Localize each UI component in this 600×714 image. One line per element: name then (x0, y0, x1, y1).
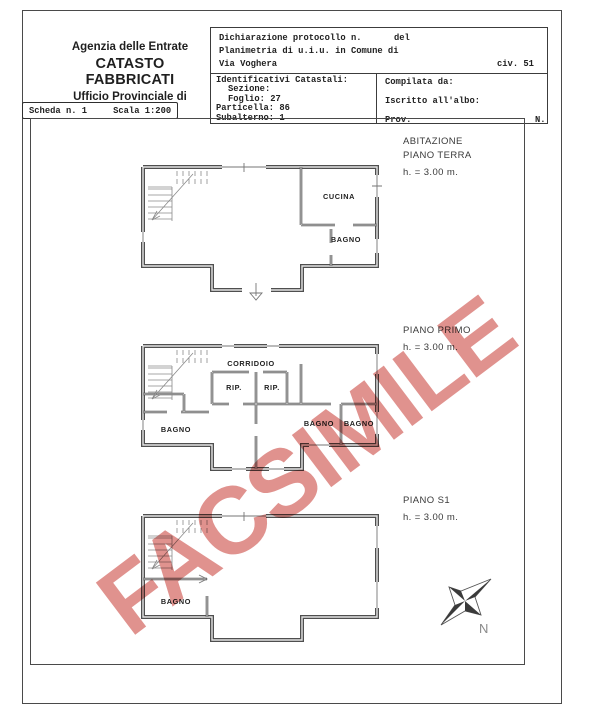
cadastral-identifiers: Identificativi Catastali: Sezione: Fogli… (211, 74, 377, 124)
del-label: del (394, 32, 410, 45)
window-symbols (143, 163, 382, 296)
protocol-section: Dichiarazione protocollo n. del Planimet… (211, 28, 547, 74)
planimetria-label: Planimetria di u.i.u. in Comune di (219, 45, 539, 58)
window-symbols (199, 512, 377, 608)
height-label: h. = 3.00 m. (403, 166, 472, 180)
compiler-box: Compilata da: Iscritto all'albo: Prov. N… (377, 74, 547, 124)
floor-title-piano-s1: PIANO S1 h. = 3.00 m. (403, 494, 458, 525)
staircase-icon (148, 350, 207, 400)
compass-rose-icon: N (431, 567, 503, 639)
room-label-corridoio: CORRIDOIO (227, 359, 275, 368)
floorplan-piano-terra: CUCINA BAGNO (139, 163, 389, 303)
protocol-row-address: Via Voghera civ. 51 (219, 58, 539, 71)
north-label: N (479, 621, 488, 636)
protocol-row-declaration: Dichiarazione protocollo n. del (219, 32, 539, 45)
floorplan-piano-primo: CORRIDOIO RIP. RIP. BAGNO BAGNO BAGNO (139, 342, 389, 482)
staircase-icon (148, 171, 207, 221)
floorplan-piano-s1: BAGNO (139, 512, 389, 662)
declaration-label: Dichiarazione protocollo n. (219, 33, 362, 43)
albo-label: Iscritto all'albo: (385, 96, 539, 106)
agency-header: Agenzia delle Entrate CATASTO FABBRICATI… (51, 41, 209, 103)
cadastral-document-page: Agenzia delle Entrate CATASTO FABBRICATI… (0, 0, 600, 714)
piano-primo-label: PIANO PRIMO (403, 324, 471, 338)
height-label: h. = 3.00 m. (403, 341, 471, 355)
height-label: h. = 3.00 m. (403, 511, 458, 525)
catasto-title: CATASTO FABBRICATI (51, 56, 209, 88)
room-label-bagno: BAGNO (331, 235, 361, 244)
scale-label: Scala 1:200 (113, 106, 171, 116)
drawing-area: CUCINA BAGNO CORRIDOIO RIP. RIP. BAGNO B… (30, 118, 525, 665)
street-label: Via Voghera (219, 59, 277, 69)
floor-title-piano-primo: PIANO PRIMO h. = 3.00 m. (403, 324, 471, 355)
floor-title-piano-terra: ABITAZIONE PIANO TERRA h. = 3.00 m. (403, 135, 472, 180)
civic-number-label: civ. 51 (497, 58, 534, 71)
agency-name: Agenzia delle Entrate (51, 41, 209, 53)
compilata-label: Compilata da: (385, 77, 539, 87)
sheet-scale-box: Scheda n. 1 Scala 1:200 (22, 102, 178, 119)
abitazione-label: ABITAZIONE (403, 135, 472, 149)
room-label-rip-left: RIP. (226, 383, 242, 392)
staircase-icon (148, 520, 207, 570)
room-label-bagno: BAGNO (161, 597, 191, 606)
protocol-box: Dichiarazione protocollo n. del Planimet… (210, 27, 548, 124)
room-label-bagno-left: BAGNO (161, 425, 191, 434)
piano-terra-label: PIANO TERRA (403, 149, 472, 163)
sheet-number-label: Scheda n. 1 (23, 106, 87, 116)
room-label-bagno-right: BAGNO (344, 419, 374, 428)
piano-s1-label: PIANO S1 (403, 494, 458, 508)
number-label: N. (535, 115, 546, 125)
room-label-bagno-mid: BAGNO (304, 419, 334, 428)
room-label-cucina: CUCINA (323, 192, 355, 201)
identifiers-section: Identificativi Catastali: Sezione: Fogli… (211, 74, 547, 124)
room-label-rip-right: RIP. (264, 383, 280, 392)
